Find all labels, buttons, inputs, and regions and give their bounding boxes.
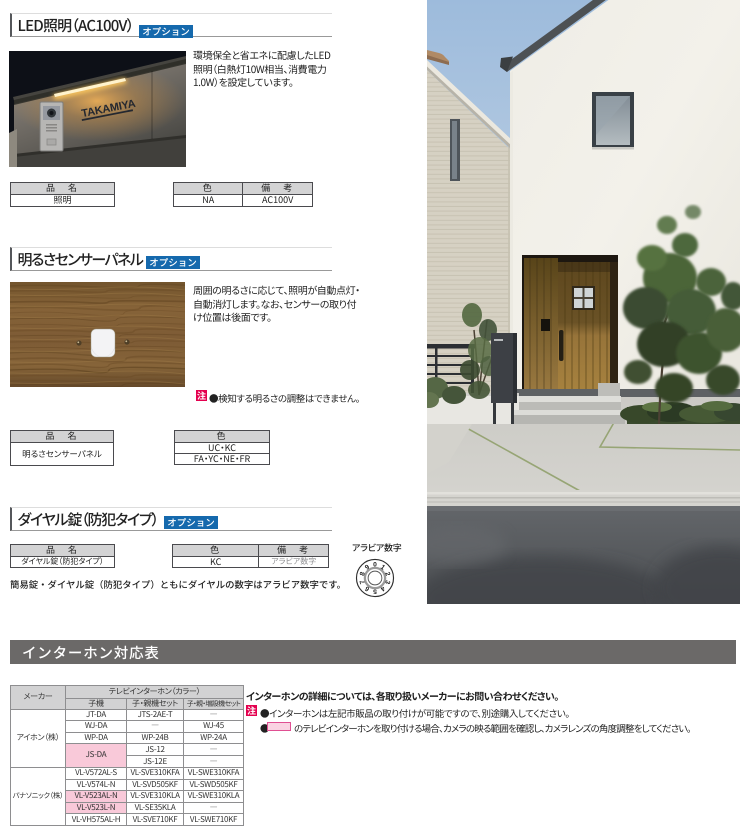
- svg-text:5: 5: [373, 587, 377, 594]
- svg-text:0: 0: [373, 562, 377, 569]
